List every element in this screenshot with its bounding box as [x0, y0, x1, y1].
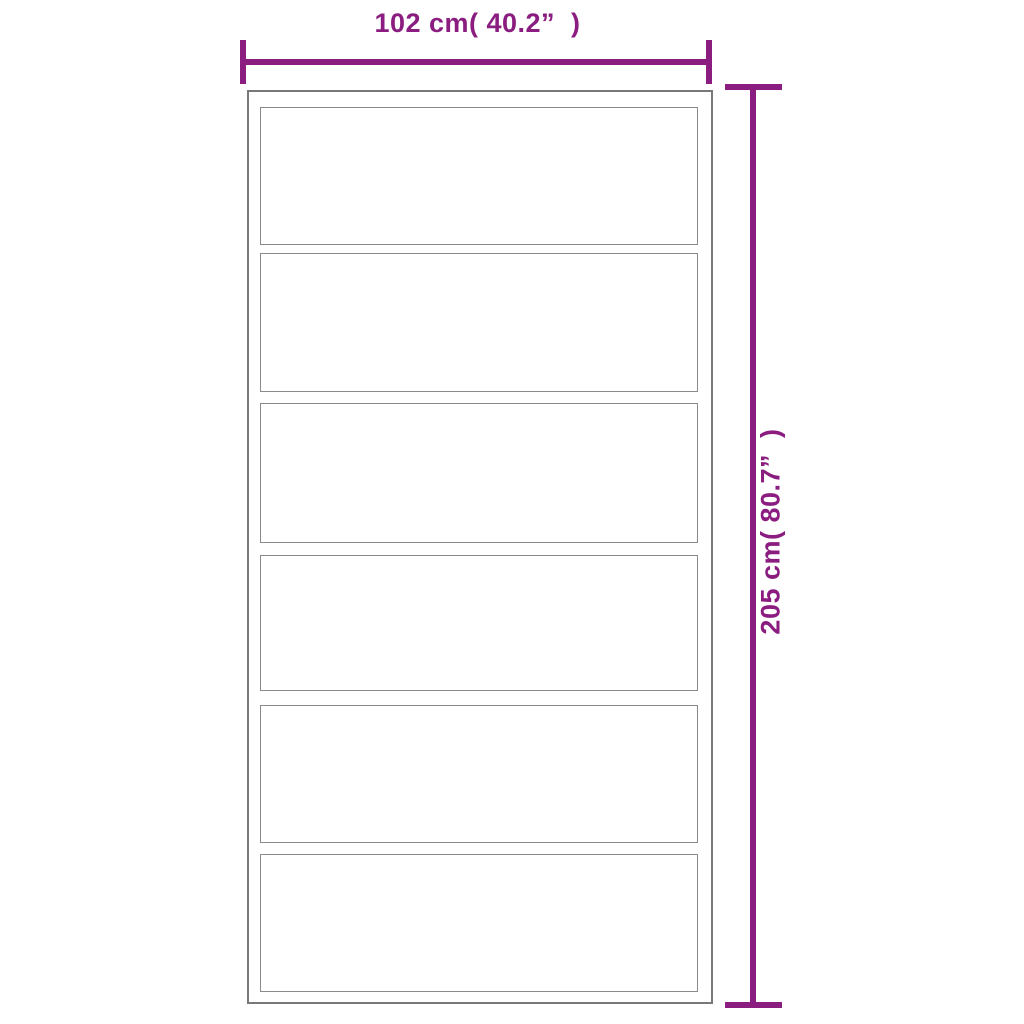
height-dimension-tick-top: [725, 84, 782, 90]
width-dimension-label: 102 cm( 40.2” ): [243, 8, 712, 39]
door-panel: [260, 253, 698, 392]
width-dimension-tick-left: [240, 40, 246, 84]
height-dimension-tick-bottom: [725, 1002, 782, 1008]
door-panel: [260, 705, 698, 843]
width-dimension-line: [242, 59, 711, 65]
door-panel: [260, 107, 698, 245]
door-panel: [260, 854, 698, 992]
door-panel: [260, 555, 698, 691]
door-panel: [260, 403, 698, 543]
width-dimension-tick-right: [706, 40, 712, 84]
dimension-diagram: 102 cm( 40.2” ) 205 cm( 80.7” ): [0, 0, 1024, 1024]
